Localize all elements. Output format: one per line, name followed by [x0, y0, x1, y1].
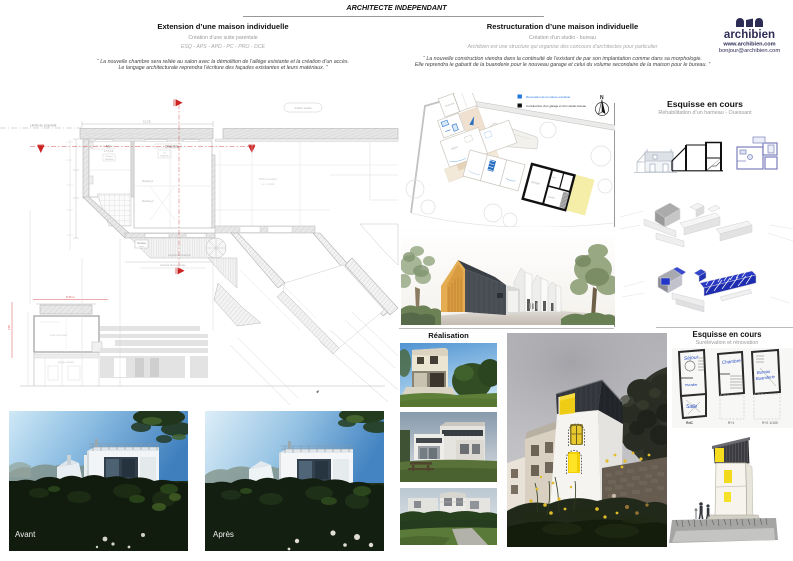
svg-text:RDC existant: RDC existant — [259, 177, 277, 181]
svg-text:Construction d'un garage et d': Construction d'un garage et d'un studio-… — [526, 104, 586, 108]
svg-text:pergola à conserver: pergola à conserver — [168, 253, 191, 257]
svg-text:www.archibien.com: www.archibien.com — [722, 42, 775, 48]
svg-text:emprise de la terrasse: emprise de la terrasse — [160, 263, 186, 267]
svg-text:17,5 m2: 17,5 m2 — [104, 149, 114, 153]
svg-text:toiture voisin: toiture voisin — [295, 106, 312, 110]
svg-text:archibien: archibien — [724, 29, 775, 41]
svg-text:13,25: 13,25 — [143, 120, 151, 124]
svg-text:160x200: 160x200 — [160, 156, 169, 158]
svg-text:R+2 1/100: R+2 1/100 — [762, 421, 778, 425]
svg-text:Terrasse: Terrasse — [137, 242, 147, 245]
svg-text:Salle: Salle — [686, 404, 697, 410]
svg-text:2,60: 2,60 — [7, 324, 11, 330]
svg-text:Après: Après — [213, 530, 234, 539]
svg-text:160x200: 160x200 — [105, 159, 114, 161]
svg-text:Rénovation de la maison exista: Rénovation de la maison existante — [526, 95, 571, 99]
svg-text:Limite de propriété: Limite de propriété — [30, 124, 57, 128]
svg-text:bonjour@archibien.com: bonjour@archibien.com — [719, 48, 780, 54]
svg-text:suite parentale: suite parentale — [50, 333, 68, 337]
svg-text:Lit: Lit — [163, 152, 166, 155]
svg-text:Dressing 1: Dressing 1 — [142, 180, 154, 183]
svg-text:garage existant: garage existant — [58, 361, 75, 364]
svg-text:Avant: Avant — [15, 530, 36, 539]
svg-text:Chevet: Chevet — [106, 155, 113, 158]
svg-text:escalier: escalier — [685, 383, 698, 387]
svg-text:RdC: RdC — [686, 421, 694, 425]
svg-text:non modifié: non modifié — [261, 182, 275, 186]
svg-text:R+1: R+1 — [728, 421, 734, 425]
svg-text:8,30 m: 8,30 m — [66, 295, 75, 299]
svg-text:Dressing 2: Dressing 2 — [142, 200, 154, 203]
